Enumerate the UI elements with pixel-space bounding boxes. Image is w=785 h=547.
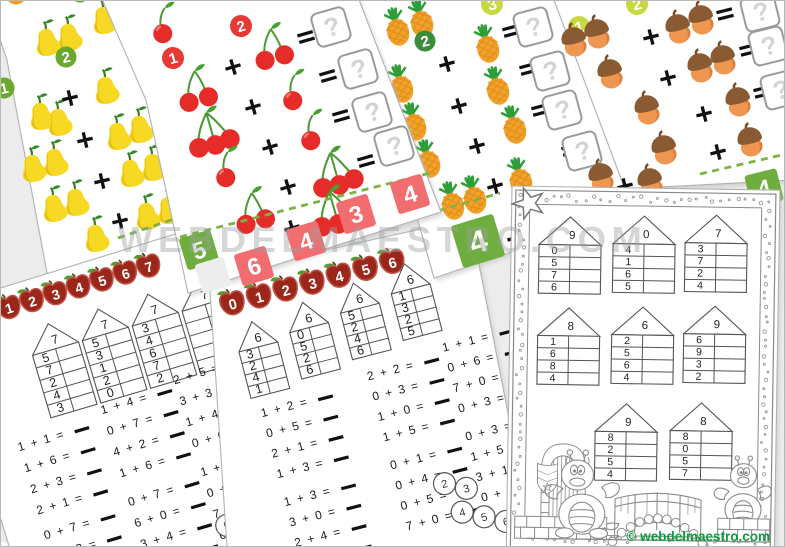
svg-text:6: 6 bbox=[696, 334, 702, 346]
svg-text:4: 4 bbox=[623, 372, 629, 384]
svg-text:7: 7 bbox=[697, 255, 703, 267]
svg-text:5: 5 bbox=[607, 456, 613, 468]
svg-text:6: 6 bbox=[642, 320, 649, 332]
svg-text:8: 8 bbox=[567, 321, 574, 333]
svg-text:7: 7 bbox=[715, 228, 722, 240]
svg-text:4: 4 bbox=[549, 372, 555, 384]
svg-text:5: 5 bbox=[624, 347, 630, 359]
svg-text:7: 7 bbox=[682, 468, 688, 480]
svg-text:6: 6 bbox=[551, 281, 557, 293]
svg-text:2: 2 bbox=[607, 444, 613, 456]
svg-text:3: 3 bbox=[696, 359, 702, 371]
svg-text:6: 6 bbox=[625, 268, 631, 280]
svg-text:9: 9 bbox=[625, 417, 632, 429]
svg-text:9: 9 bbox=[696, 346, 702, 358]
svg-text:5: 5 bbox=[625, 281, 631, 293]
svg-text:8: 8 bbox=[608, 432, 614, 444]
svg-text:0: 0 bbox=[682, 443, 688, 455]
svg-text:8: 8 bbox=[550, 360, 556, 372]
svg-text:1: 1 bbox=[550, 336, 556, 348]
svg-text:9: 9 bbox=[714, 319, 721, 331]
svg-text:5: 5 bbox=[682, 455, 688, 467]
svg-text:© webdelmaestro.com: © webdelmaestro.com bbox=[627, 529, 771, 544]
svg-text:6: 6 bbox=[624, 359, 630, 371]
svg-text:6: 6 bbox=[550, 348, 556, 360]
svg-text:8: 8 bbox=[700, 416, 707, 428]
svg-text:4: 4 bbox=[697, 280, 703, 292]
svg-text:2: 2 bbox=[696, 371, 702, 383]
svg-text:4: 4 bbox=[607, 468, 613, 480]
svg-text:3: 3 bbox=[698, 243, 704, 255]
svg-text:2: 2 bbox=[624, 335, 630, 347]
svg-text:WEBDELMAESTRO.COM: WEBDELMAESTRO.COM bbox=[118, 219, 647, 260]
svg-text:8: 8 bbox=[683, 431, 689, 443]
svg-text:2: 2 bbox=[697, 268, 703, 280]
svg-text:7: 7 bbox=[551, 269, 557, 281]
